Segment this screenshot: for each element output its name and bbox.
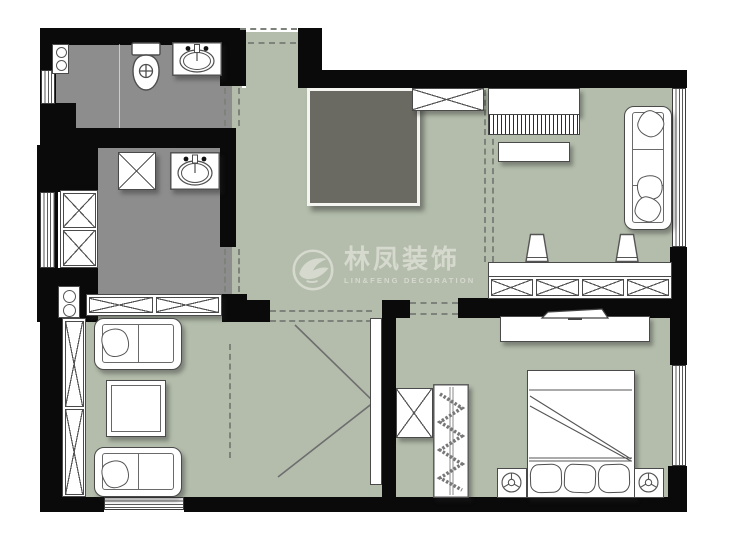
sofa-icon-lounge: [624, 106, 672, 230]
nightstand-lamp-icon-right: [634, 468, 664, 498]
floor-plan: 林凤装饰 LIN&FENG DECORATION: [0, 0, 740, 550]
door-opening-icon-washroom: [224, 249, 240, 292]
wall-entry-side: [298, 28, 322, 88]
storage-x-icon-living-column: [62, 318, 86, 497]
wall-left-bottom: [40, 316, 62, 512]
appliance-circles-unit-2: [58, 286, 80, 318]
storage-x-cell: [65, 409, 84, 495]
bathroom-divider-line: [119, 44, 120, 128]
window-icon-washroom-left: [40, 192, 55, 268]
appliance-circles-unit: [52, 44, 69, 74]
storage-x-icon-washroom: [118, 152, 156, 190]
storage-x-cell: [536, 279, 578, 296]
window-icon-living-bottom: [104, 497, 184, 510]
door-opening-icon-entry: [240, 28, 297, 30]
storage-x-icon-washroom-column: [60, 190, 98, 268]
wall-right-mid: [670, 247, 687, 365]
watermark: 林凤装饰 LIN&FENG DECORATION: [291, 245, 475, 292]
bed-pillow: [598, 463, 631, 493]
storage-x-cell: [63, 230, 96, 266]
window-icon-right-top: [672, 88, 686, 247]
bed-pillow: [564, 463, 597, 493]
piano-icon-body: [488, 88, 580, 115]
tv-icon: [540, 306, 610, 320]
sofa-icon-living-bottom: [94, 447, 182, 497]
floor-entry-corridor: [246, 32, 298, 90]
storage-x-cell: [63, 193, 96, 229]
wall-center-bedroom-vertical: [382, 300, 396, 512]
sink-icon-washroom: [170, 152, 220, 190]
storage-x-icon-bedroom: [396, 388, 433, 438]
storage-x-cell: [491, 279, 533, 296]
bar-counter-icon-top: [488, 262, 672, 277]
wall-bedroom-top-a: [382, 300, 410, 318]
door-opening-icon-bathroom: [224, 88, 240, 126]
watermark-title: 林凤装饰: [344, 245, 475, 275]
hanger-wardrobe-icon: [433, 384, 469, 498]
storage-x-cell: [65, 321, 84, 407]
storage-x-icon-living-top: [86, 294, 222, 316]
sink-icon-bathroom: [172, 42, 222, 76]
stool-icon-1: [523, 233, 551, 263]
watermark-subtitle: LIN&FENG DECORATION: [344, 276, 475, 285]
storage-x-cell: [627, 279, 669, 296]
wall-bedroom-bottom: [396, 497, 687, 512]
sliding-door-leaf: [370, 318, 382, 485]
wall-wash-left-top: [37, 145, 98, 192]
sofa-icon-living-top: [94, 318, 182, 370]
piano-bench: [498, 142, 570, 162]
nightstand-lamp-icon-left: [497, 468, 527, 498]
table-icon-living: [106, 380, 166, 437]
dashed-floor-line-a: [484, 90, 486, 262]
wall-hall-center-piece: [230, 300, 270, 322]
wall-top-right: [322, 70, 687, 88]
storage-x-cell: [156, 297, 220, 313]
wall-bath-right: [220, 28, 246, 86]
door-opening-icon-bedroom: [410, 302, 458, 315]
door-opening-icon-entry-inner: [248, 42, 296, 44]
window-icon-bathroom-left: [41, 70, 55, 104]
piano-icon-keys: [488, 114, 580, 135]
phoenix-circle-logo-icon: [291, 248, 335, 292]
bar-counter-icon-cells: [488, 276, 672, 299]
toilet-icon: [128, 42, 164, 92]
storage-x-cell: [582, 279, 624, 296]
storage-x-icon-hall-top: [412, 88, 484, 111]
dashed-boundary-center-room: [229, 344, 231, 458]
bed-icon: [527, 370, 635, 498]
dark-room: [307, 88, 420, 206]
bed-pillow: [530, 463, 563, 493]
swing-line-icon: [270, 318, 380, 482]
window-icon-right-bottom: [672, 365, 686, 466]
storage-x-cell: [89, 297, 153, 313]
wall-bottom-a: [40, 497, 104, 512]
wall-wash-right: [220, 148, 236, 247]
stool-icon-2: [613, 233, 641, 263]
wall-bottom-b: [184, 497, 396, 512]
